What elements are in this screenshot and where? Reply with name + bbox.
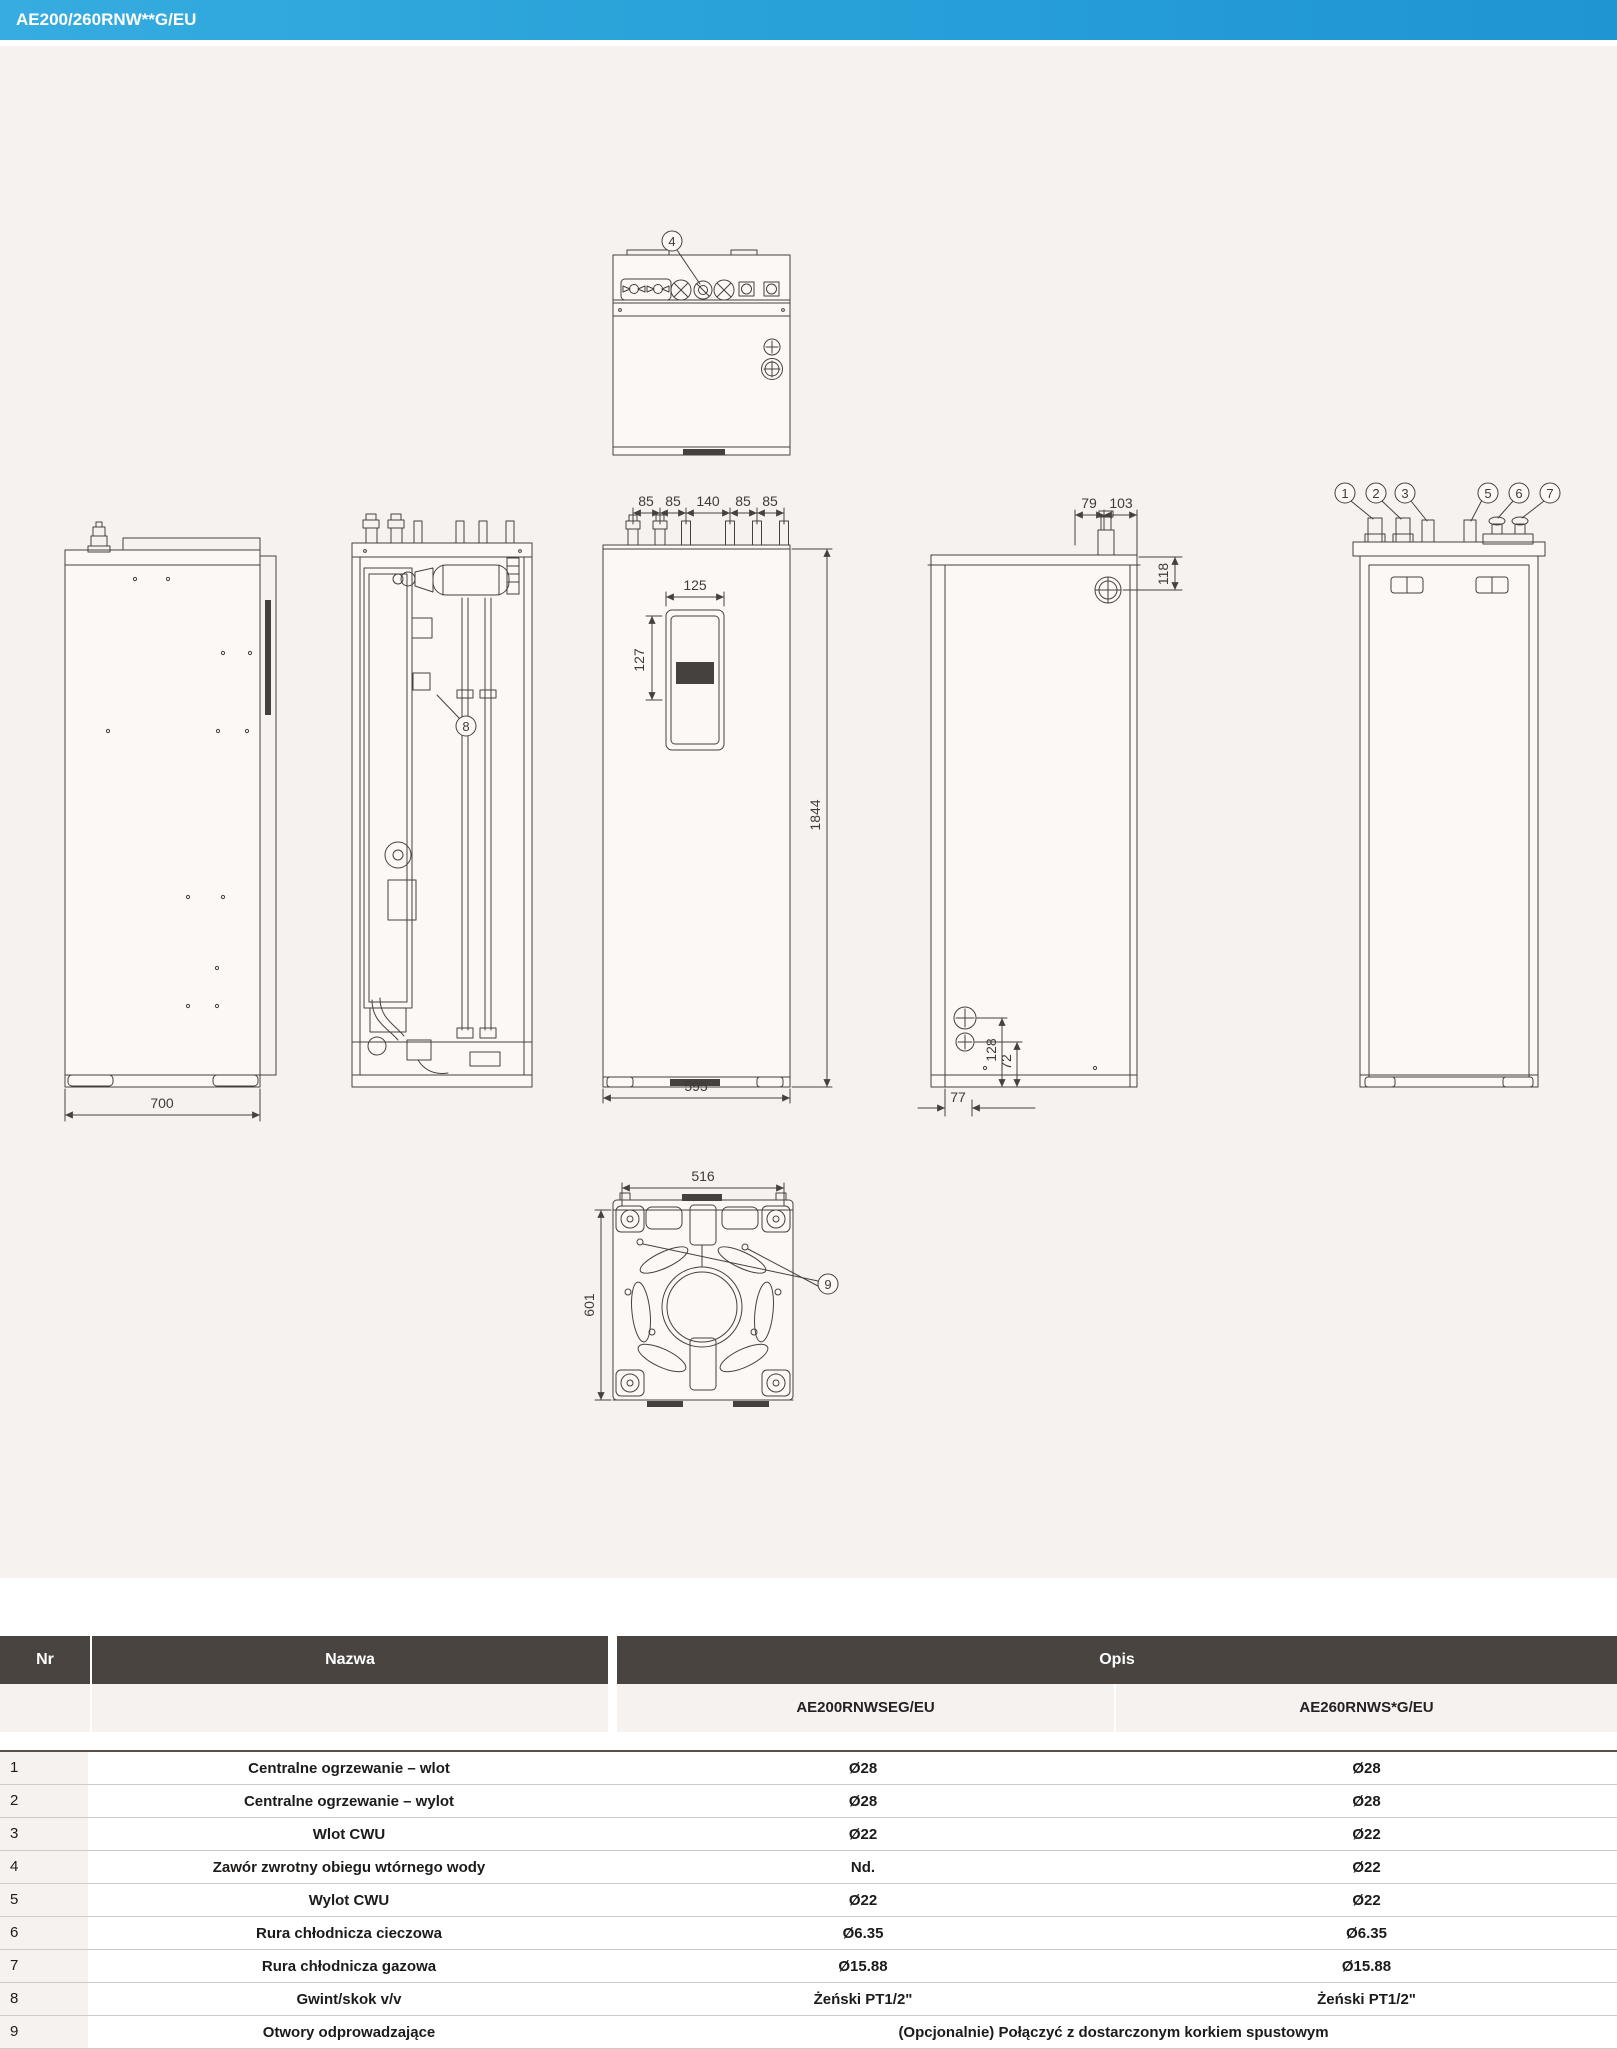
bottom-view-drawing: 516 601 9 bbox=[581, 1168, 838, 1407]
dim-pipe-85d: 85 bbox=[762, 493, 778, 509]
dim-base-depth: 601 bbox=[581, 1293, 597, 1317]
col-header-nazwa: Nazwa bbox=[92, 1636, 608, 1684]
table-row: 8 Gwint/skok v/v Żeński PT1/2" Żeński PT… bbox=[0, 1983, 1617, 2016]
row-value-ae260: Ø6.35 bbox=[1116, 1925, 1617, 1942]
right-side-view-drawing: 79 103 118 128 72 77 bbox=[918, 495, 1182, 1116]
table-row: 5 Wylot CWU Ø22 Ø22 bbox=[0, 1884, 1617, 1917]
table-row: 6 Rura chłodnicza cieczowa Ø6.35 Ø6.35 bbox=[0, 1917, 1617, 1950]
row-number: 1 bbox=[0, 1752, 88, 1784]
row-value-ae260: Ø28 bbox=[1116, 1793, 1617, 1810]
row-name: Centralne ogrzewanie – wylot bbox=[88, 1793, 610, 1810]
row-value-ae200: Nd. bbox=[610, 1859, 1116, 1876]
row-name: Gwint/skok v/v bbox=[88, 1991, 610, 2008]
col-header-nr: Nr bbox=[0, 1636, 90, 1684]
callout-6-label: 6 bbox=[1515, 486, 1522, 501]
dim-unit-height: 1844 bbox=[807, 799, 823, 830]
row-value-ae260: Ø22 bbox=[1116, 1859, 1617, 1876]
model-name-ae260: AE260RNWS*G/EU bbox=[1116, 1684, 1617, 1732]
internal-view-drawing: 8 bbox=[352, 514, 532, 1087]
dim-panel-width: 125 bbox=[683, 577, 707, 593]
row-number: 3 bbox=[0, 1818, 88, 1850]
dim-side-top-79: 79 bbox=[1081, 495, 1097, 511]
row-value-ae260: Ø22 bbox=[1116, 1892, 1617, 1909]
row-name: Otwory odprowadzające bbox=[88, 2024, 610, 2041]
table-row: 7 Rura chłodnicza gazowa Ø15.88 Ø15.88 bbox=[0, 1950, 1617, 1983]
table-row: 2 Centralne ogrzewanie – wylot Ø28 Ø28 bbox=[0, 1785, 1617, 1818]
spec-table: Nr Nazwa Opis AE200RNWSEG/EU AE260RNWS*G… bbox=[0, 1636, 1617, 2049]
col-header-opis: Opis bbox=[617, 1636, 1617, 1684]
row-value-ae260: Ø28 bbox=[1116, 1760, 1617, 1777]
row-value-ae200: Ø15.88 bbox=[610, 1958, 1116, 1975]
row-number: 5 bbox=[0, 1884, 88, 1916]
row-value-ae260: Ø22 bbox=[1116, 1826, 1617, 1843]
row-value-ae260: Ø15.88 bbox=[1116, 1958, 1617, 1975]
dim-side-top-103: 103 bbox=[1109, 495, 1133, 511]
table-header-row: Nr Nazwa Opis bbox=[0, 1636, 1617, 1684]
model-row-spacer-2 bbox=[92, 1684, 608, 1732]
row-number: 9 bbox=[0, 2016, 88, 2048]
front-view-drawing: 85 85 140 85 85 125 127 1844 595 bbox=[603, 493, 832, 1103]
dim-side-bottom-77: 77 bbox=[950, 1089, 966, 1105]
table-row: 3 Wlot CWU Ø22 Ø22 bbox=[0, 1818, 1617, 1851]
callout-5-label: 5 bbox=[1484, 486, 1491, 501]
dim-panel-height: 127 bbox=[631, 648, 647, 672]
row-number: 2 bbox=[0, 1785, 88, 1817]
table-row: 4 Zawór zwrotny obiegu wtórnego wody Nd.… bbox=[0, 1851, 1617, 1884]
dim-side-bottom-128: 128 bbox=[983, 1038, 999, 1062]
dim-pipe-140: 140 bbox=[696, 493, 720, 509]
row-name: Zawór zwrotny obiegu wtórnego wody bbox=[88, 1859, 610, 1876]
row-value-ae200: Ø22 bbox=[610, 1826, 1116, 1843]
model-row-spacer-1 bbox=[0, 1684, 90, 1732]
row-name: Rura chłodnicza cieczowa bbox=[88, 1925, 610, 1942]
dim-pipe-85b: 85 bbox=[665, 493, 681, 509]
row-number: 6 bbox=[0, 1917, 88, 1949]
dim-side-bottom-72: 72 bbox=[998, 1054, 1014, 1070]
page-title: AE200/260RNW**G/EU bbox=[0, 0, 1617, 40]
table-body: 1 Centralne ogrzewanie – wlot Ø28 Ø28 2 … bbox=[0, 1750, 1617, 2049]
callout-9-label: 9 bbox=[824, 1277, 831, 1292]
callout-2-label: 2 bbox=[1372, 486, 1379, 501]
row-value-ae200: Ø22 bbox=[610, 1892, 1116, 1909]
callout-1-label: 1 bbox=[1341, 486, 1348, 501]
dim-side-top-height: 118 bbox=[1155, 563, 1171, 586]
row-number: 7 bbox=[0, 1950, 88, 1982]
model-name-ae200: AE200RNWSEG/EU bbox=[617, 1684, 1114, 1732]
callout-4-label: 4 bbox=[668, 234, 675, 249]
table-row: 1 Centralne ogrzewanie – wlot Ø28 Ø28 bbox=[0, 1752, 1617, 1785]
table-model-row: AE200RNWSEG/EU AE260RNWS*G/EU bbox=[0, 1684, 1617, 1732]
dim-pipe-85c: 85 bbox=[735, 493, 751, 509]
row-name: Centralne ogrzewanie – wlot bbox=[88, 1760, 610, 1777]
page: { "header": { "title": "AE200/260RNW**G/… bbox=[0, 0, 1617, 2047]
row-name: Wlot CWU bbox=[88, 1826, 610, 1843]
row-name: Rura chłodnicza gazowa bbox=[88, 1958, 610, 1975]
left-side-view-drawing: 700 bbox=[65, 522, 276, 1121]
callout-3-label: 3 bbox=[1401, 486, 1408, 501]
dim-side-depth: 700 bbox=[150, 1095, 174, 1111]
row-value-ae260: Żeński PT1/2" bbox=[1116, 1991, 1617, 2008]
row-value-ae200: Ø28 bbox=[610, 1793, 1116, 1810]
dim-pipe-85a: 85 bbox=[638, 493, 654, 509]
rear-view-drawing: 1 2 3 5 6 7 bbox=[1335, 483, 1560, 1087]
row-value-ae200: Ø28 bbox=[610, 1760, 1116, 1777]
dim-base-width: 516 bbox=[691, 1168, 715, 1184]
callout-8-label: 8 bbox=[462, 719, 469, 734]
callout-7-label: 7 bbox=[1546, 486, 1553, 501]
table-row: 9 Otwory odprowadzające (Opcjonalnie) Po… bbox=[0, 2016, 1617, 2049]
table-gap bbox=[0, 1732, 1617, 1750]
row-number: 4 bbox=[0, 1851, 88, 1883]
technical-drawing: 4 700 bbox=[0, 46, 1617, 1578]
row-name: Wylot CWU bbox=[88, 1892, 610, 1909]
dim-front-width: 595 bbox=[684, 1078, 708, 1094]
top-view-drawing: 4 bbox=[613, 231, 790, 455]
row-value-ae200: Żeński PT1/2" bbox=[610, 1991, 1116, 2008]
row-value-ae200: Ø6.35 bbox=[610, 1925, 1116, 1942]
row-value-span: (Opcjonalnie) Połączyć z dostarczonym ko… bbox=[610, 2024, 1617, 2041]
row-number: 8 bbox=[0, 1983, 88, 2015]
